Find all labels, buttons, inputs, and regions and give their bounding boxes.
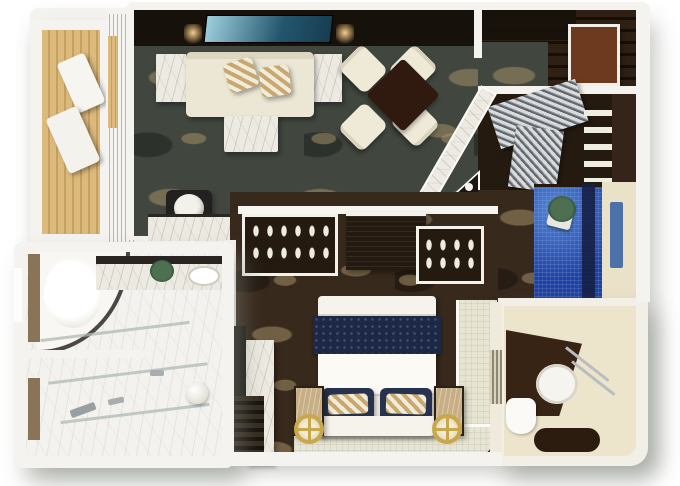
gold-sham-left [328, 393, 369, 414]
inner-wall-stub [26, 350, 144, 358]
counter-sink [188, 266, 220, 286]
shoe-row [249, 223, 329, 239]
floorplan-3d-render [0, 0, 680, 486]
shoe-row [249, 245, 329, 261]
wall-bottom [224, 452, 502, 466]
shoe-cabinet-left [242, 214, 338, 276]
shoe-row [422, 237, 474, 253]
marble-console [148, 214, 240, 241]
shower-plant [548, 196, 576, 222]
entry-wall-stub [474, 8, 482, 58]
wall-window-gap [14, 268, 22, 322]
dresser [346, 212, 426, 270]
shower-glass-stripe [582, 184, 595, 310]
side-table-left [156, 54, 186, 102]
shoe-row [422, 255, 474, 271]
bathroom-door-panel-2 [28, 378, 40, 440]
bathroom-plant [150, 260, 174, 282]
entry-door [568, 24, 620, 86]
wall-right [636, 2, 650, 302]
vanity-sink [536, 364, 578, 404]
minibar-glass-4 [465, 183, 473, 191]
tv-screen [204, 15, 334, 43]
bathroom-door-panel-1 [28, 254, 40, 342]
closet-shelves [584, 110, 614, 182]
shower-fixture-3 [150, 370, 164, 376]
sofa-pillow-2 [258, 64, 292, 98]
gold-ring-lamp-left [294, 414, 324, 444]
gold-sham-right [386, 393, 427, 414]
sconce-left-icon [184, 24, 202, 46]
divider-louver [490, 350, 502, 404]
bed-navy-runner [313, 316, 441, 354]
sconce-right-icon [336, 24, 354, 46]
entry-ceiling-beam [480, 8, 576, 40]
bath-mat [534, 428, 600, 452]
curtain-wood-slats [108, 36, 117, 128]
bed-skirt [316, 416, 438, 436]
bathtub [44, 258, 102, 328]
coffee-table [224, 116, 278, 152]
side-table-right [314, 54, 342, 102]
shoe-cabinet-right [416, 226, 484, 284]
wall-top [128, 2, 646, 10]
toilet [506, 398, 536, 434]
gold-ring-lamp-right [432, 414, 462, 444]
round-basin [186, 382, 208, 404]
towel-blue [610, 202, 623, 268]
accordion-door-lower [508, 125, 564, 193]
